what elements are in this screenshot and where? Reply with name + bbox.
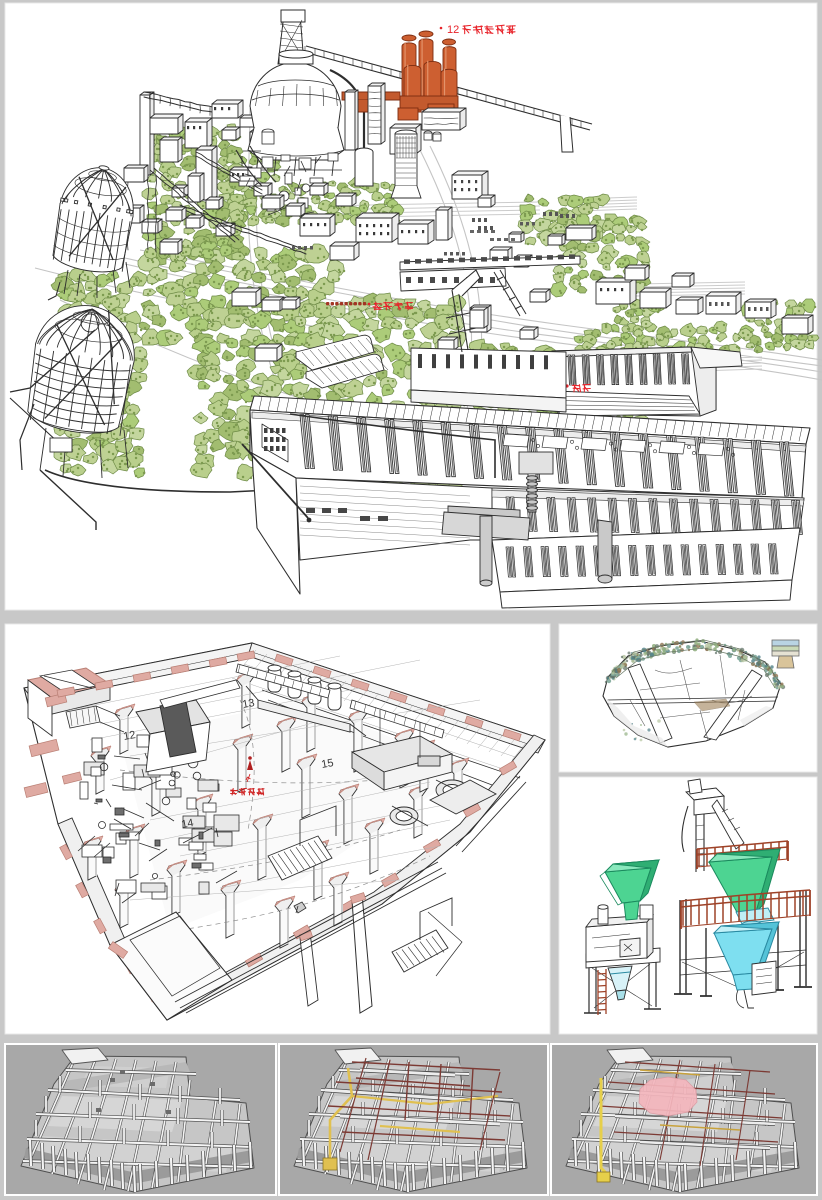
svg-text:12: 12 (447, 24, 459, 36)
svg-text:13: 13 (241, 697, 255, 711)
svg-text:12: 12 (122, 729, 136, 743)
svg-text:15: 15 (320, 757, 334, 771)
svg-text:14: 14 (180, 817, 194, 831)
